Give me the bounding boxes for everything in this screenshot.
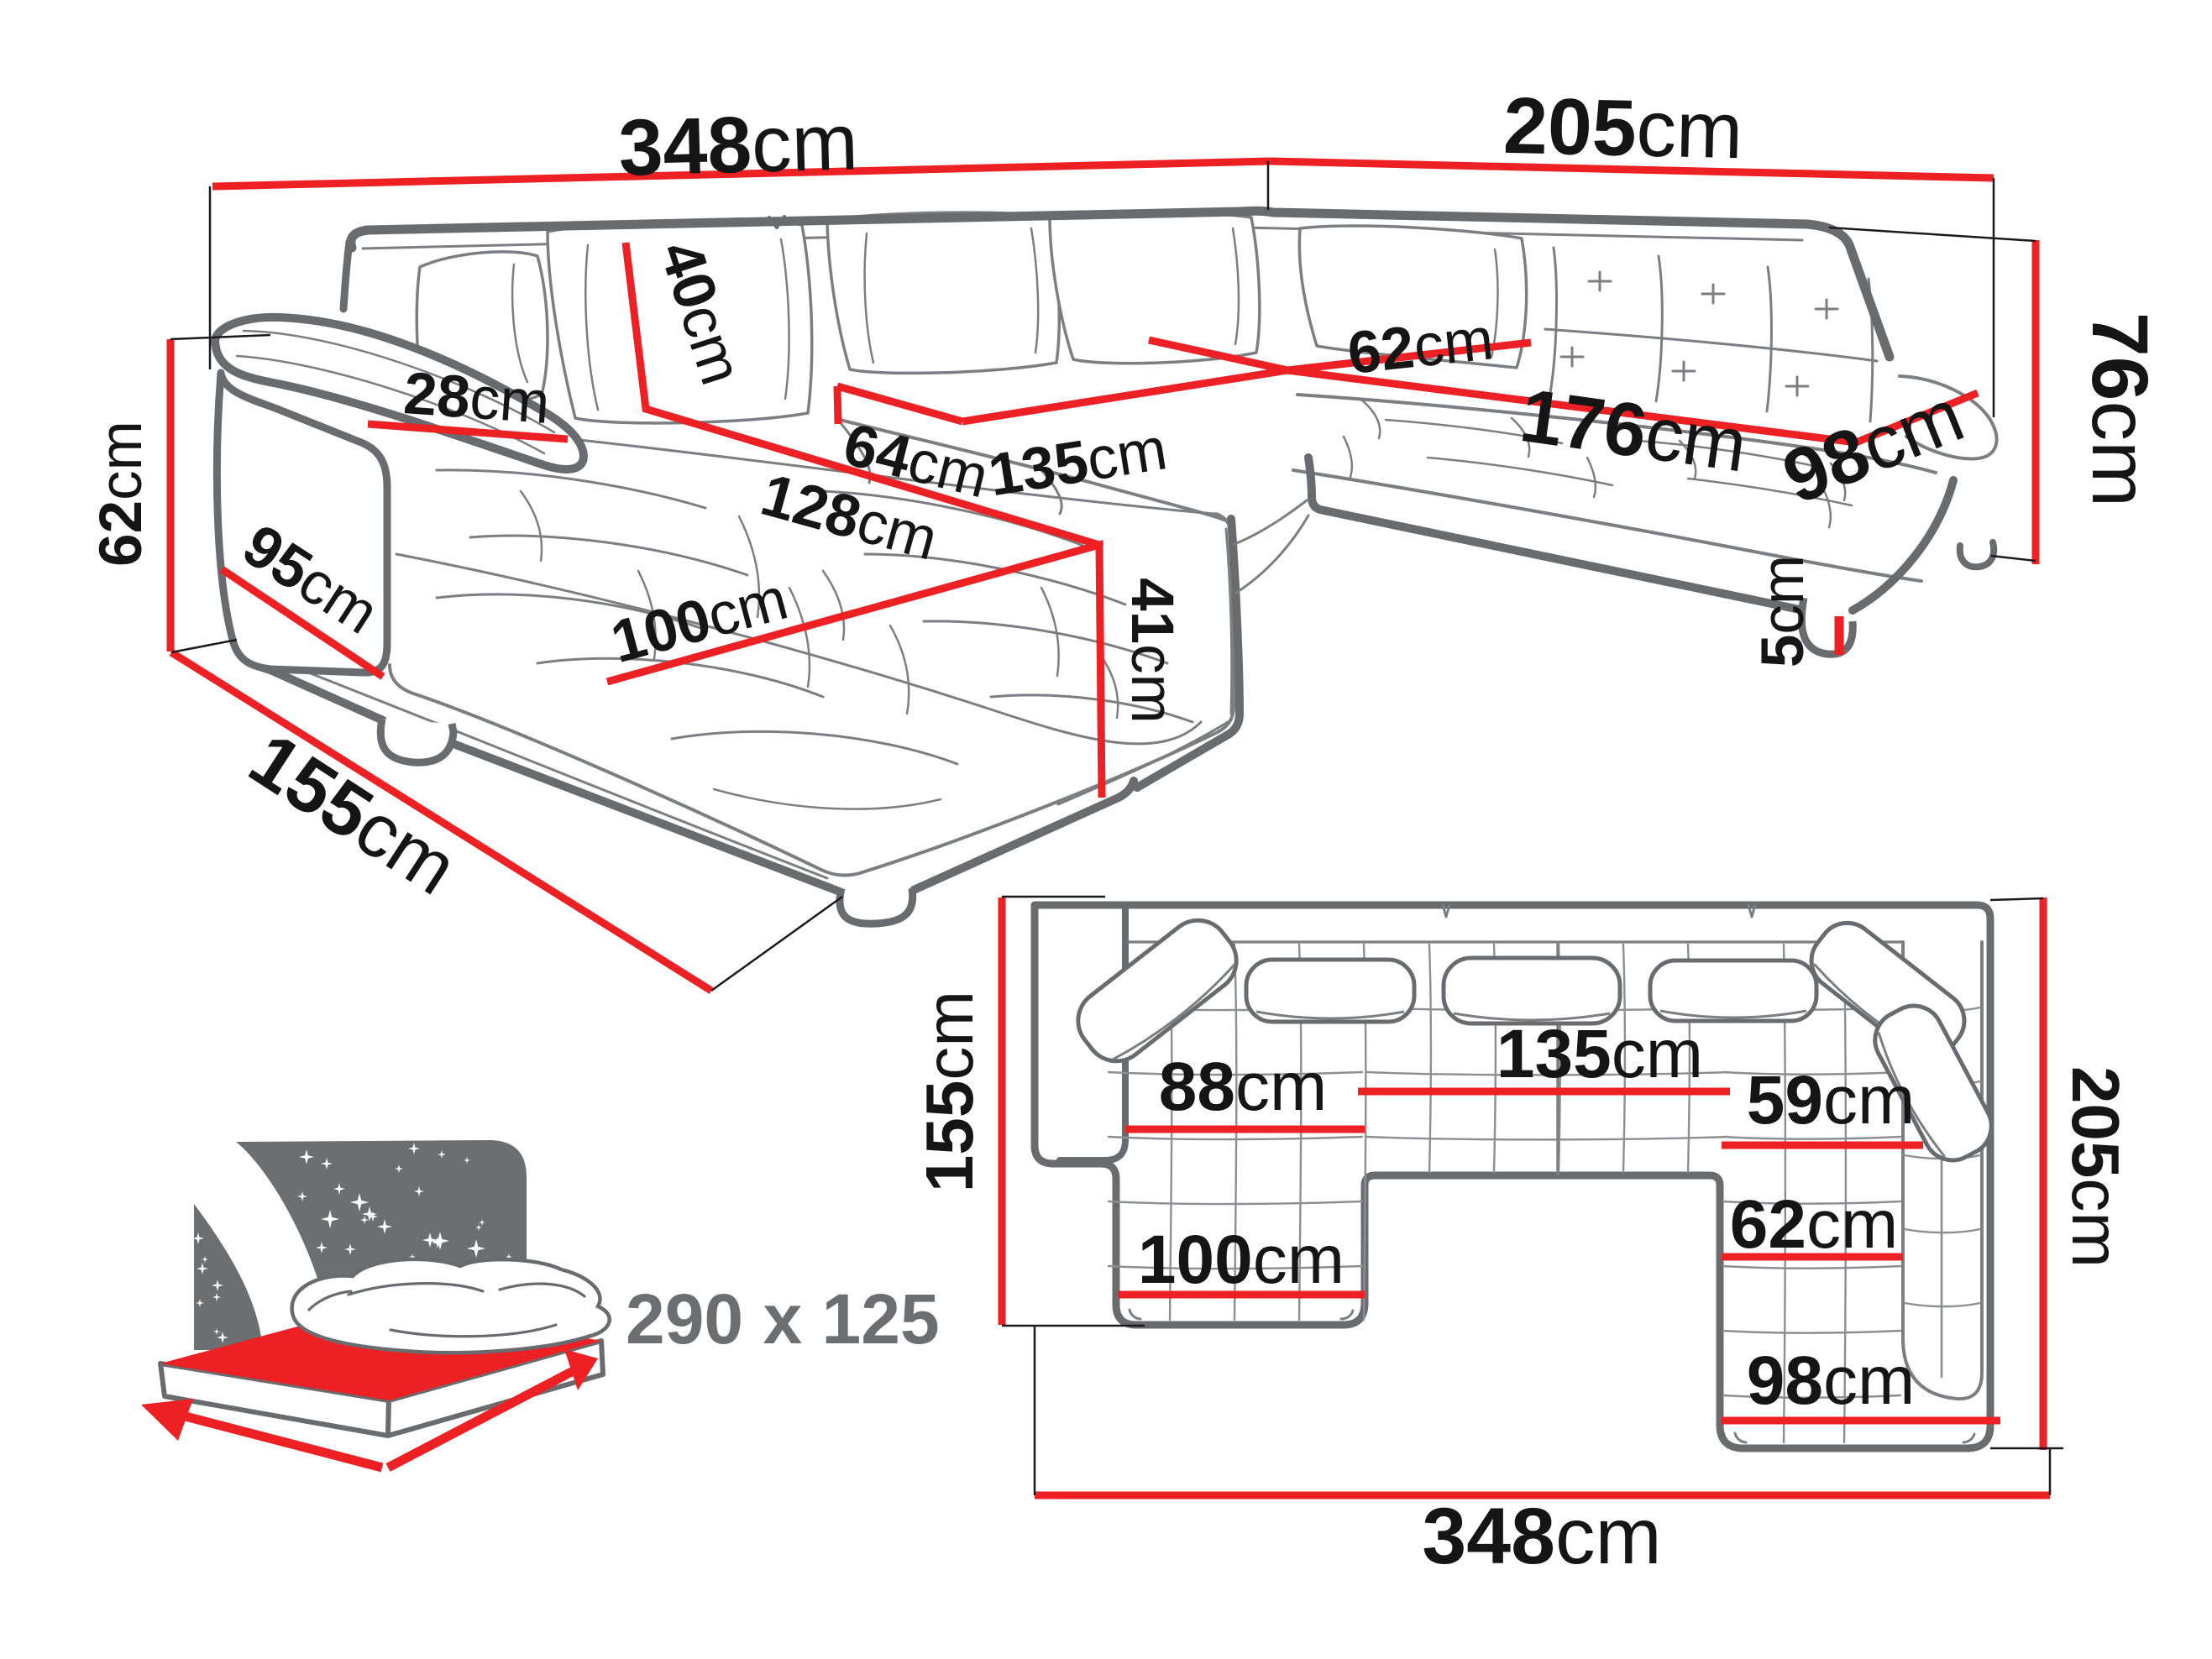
svg-text:28cm: 28cm — [401, 360, 552, 437]
svg-text:98cm: 98cm — [1747, 1342, 1916, 1419]
svg-text:100cm: 100cm — [1138, 1222, 1344, 1298]
svg-text:62cm: 62cm — [88, 421, 155, 567]
svg-text:41cm: 41cm — [1119, 578, 1185, 724]
svg-text:205cm: 205cm — [1502, 81, 1743, 175]
svg-text:348cm: 348cm — [1422, 1492, 1661, 1581]
svg-text:155cm: 155cm — [912, 991, 987, 1192]
svg-text:290 x 125: 290 x 125 — [626, 1280, 940, 1358]
svg-text:135cm: 135cm — [1497, 1016, 1703, 1092]
svg-text:5cm: 5cm — [1750, 555, 1816, 667]
svg-text:76cm: 76cm — [2075, 312, 2164, 507]
svg-text:62cm: 62cm — [1730, 1186, 1899, 1263]
svg-text:348cm: 348cm — [617, 97, 859, 192]
svg-text:88cm: 88cm — [1159, 1049, 1328, 1125]
svg-text:59cm: 59cm — [1747, 1062, 1916, 1138]
svg-text:205cm: 205cm — [2058, 1066, 2133, 1268]
